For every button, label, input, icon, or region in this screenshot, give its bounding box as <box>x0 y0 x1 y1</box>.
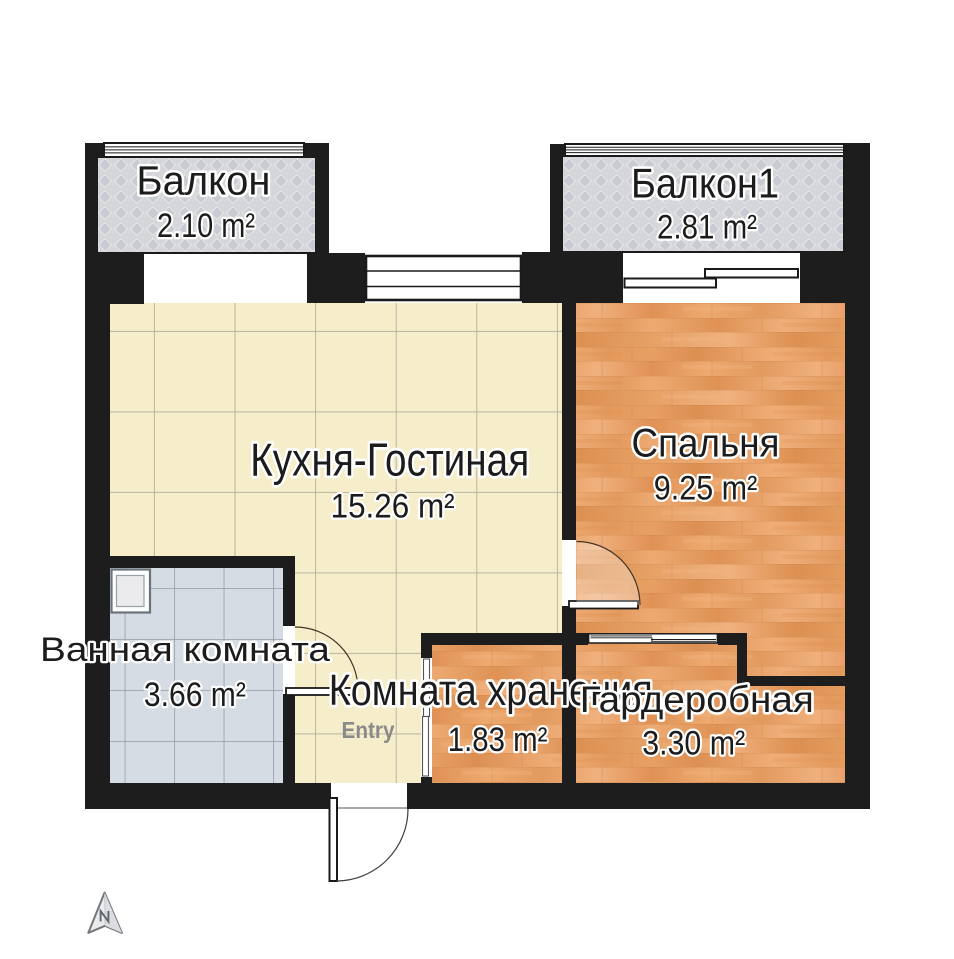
svg-text:15.26 m²: 15.26 m² <box>331 487 455 525</box>
svg-text:2.81 m²: 2.81 m² <box>657 209 757 247</box>
svg-text:Entry: Entry <box>342 717 395 743</box>
svg-text:Гардеробная: Гардеробная <box>580 679 814 720</box>
svg-text:Ванная комната: Ванная комната <box>40 631 330 669</box>
svg-text:9.25 m²: 9.25 m² <box>654 470 758 508</box>
svg-text:3.66 m²: 3.66 m² <box>144 676 246 714</box>
svg-text:1.83 m²: 1.83 m² <box>448 721 548 759</box>
svg-text:2.10 m²: 2.10 m² <box>157 207 255 245</box>
svg-text:Спальня: Спальня <box>632 421 780 465</box>
svg-text:Кухня-Гостиная: Кухня-Гостиная <box>250 433 529 485</box>
svg-text:Балкон1: Балкон1 <box>631 160 779 207</box>
svg-text:Балкон: Балкон <box>136 158 270 204</box>
svg-text:3.30 m²: 3.30 m² <box>642 725 745 763</box>
